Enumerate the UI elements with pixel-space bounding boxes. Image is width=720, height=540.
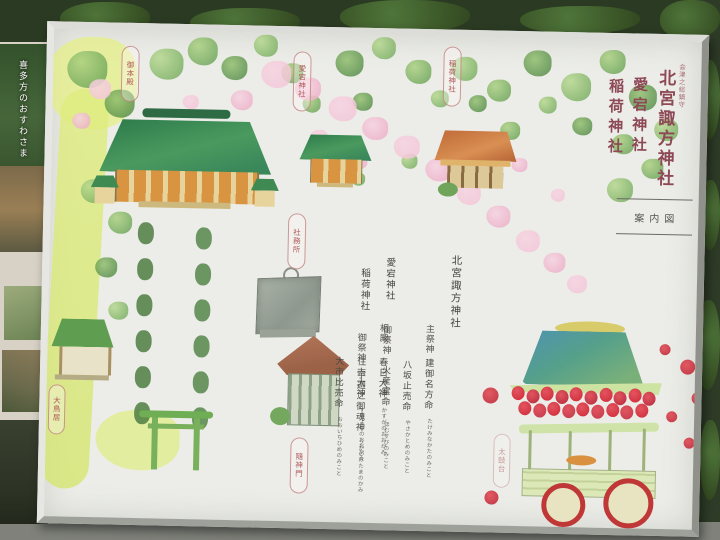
inari-hall-bush [438, 182, 458, 196]
lantern-row-blob [137, 258, 153, 280]
poster-photo-small-1 [4, 286, 42, 340]
tree-blob [405, 60, 431, 84]
blossom-blob [328, 96, 357, 122]
title-inari: 稲荷神社 [604, 78, 627, 158]
main-hall-steps [138, 201, 230, 209]
blossom-blob [394, 135, 420, 159]
legend-deity-takeminakata: 建御名方命 [422, 358, 436, 411]
float-post [642, 429, 646, 471]
legend-inari-heading: 御祭神 [355, 333, 369, 363]
blossom-blob [543, 253, 565, 273]
board-surface: 御本殿 愛宕神社 稲荷神社 社務所 大鳥居 隨神門 太鼓台 会津之総鎮守 北宮諏… [44, 28, 702, 529]
atago-hall-body [310, 159, 362, 184]
lantern-row-blob [135, 330, 151, 352]
map-label-float-text: 太鼓台 [496, 448, 508, 474]
map-label-inari-text: 稲荷神社 [446, 60, 458, 94]
title-main: 北宮諏方神社 [651, 69, 679, 189]
map-label-torii: 大鳥居 [48, 384, 66, 434]
blossom-blob [516, 230, 540, 252]
red-dot [482, 387, 498, 403]
lantern-icon [562, 404, 575, 418]
legend-furigana-oichihime: おおいちひめのみこと [334, 416, 343, 476]
blossom-blob [231, 90, 253, 110]
legend-furigana-yasakatome: やさかとめのみこと [402, 420, 411, 474]
legend-atago-deity: 火産霊命 [379, 365, 393, 407]
lantern-row-blob [136, 294, 152, 316]
tree-blob [95, 257, 117, 278]
tree-blob [108, 211, 132, 234]
lantern-icon [541, 387, 554, 401]
lantern-row-blob [193, 335, 209, 357]
blossom-blob [261, 61, 292, 89]
map-label-atago-text: 愛宕神社 [296, 64, 308, 98]
torii-post-left [151, 417, 158, 469]
atago-hall-steps [317, 183, 353, 188]
guide-map-box: 案内図 [616, 198, 693, 236]
tree-blob [561, 73, 592, 101]
blossom-blob [183, 95, 199, 110]
hut-body [59, 346, 112, 375]
lantern-icon [518, 401, 531, 415]
legend-inari-name: 稲荷神社 [356, 268, 371, 312]
main-hall-ridge [142, 108, 230, 119]
float-post [608, 430, 612, 472]
map-label-inari: 稲荷神社 [443, 46, 462, 106]
lantern-icon [635, 404, 648, 418]
lantern-icon [599, 388, 612, 402]
tree-blob [335, 50, 364, 76]
map-label-shamusho-text: 社務所 [291, 229, 303, 255]
atago-hall-illustration [299, 131, 372, 192]
poster-photo-small-2 [2, 350, 44, 412]
main-hall-body [115, 170, 260, 205]
hut-roof [52, 318, 115, 347]
blossom-blob [567, 275, 587, 293]
tree-blob [372, 37, 396, 60]
map-label-shamusho: 社務所 [287, 213, 306, 269]
stone-monument-illustration [256, 275, 321, 342]
atago-hall-roof [299, 131, 372, 161]
tree-blob [599, 50, 625, 74]
shrine-guide-board: 御本殿 愛宕神社 稲荷神社 社務所 大鳥居 隨神門 太鼓台 会津之総鎮守 北宮諏… [37, 21, 709, 537]
map-label-honden: 御本殿 [121, 46, 140, 102]
lantern-icon [533, 403, 546, 417]
tree-blob [572, 117, 592, 136]
map-label-gate: 隨神門 [289, 437, 308, 493]
legend-deity-oichihime: 大市比売命 [332, 356, 346, 409]
map-label-honden-text: 御本殿 [124, 61, 136, 87]
tree-blob [487, 79, 511, 102]
map-label-gate-text: 隨神門 [293, 453, 305, 479]
blossom-blob [72, 113, 90, 130]
tree-blob [539, 96, 557, 113]
legend-suwa-name: 北宮諏方神社 [448, 255, 465, 330]
lantern-row-blob [138, 222, 154, 244]
map-label-torii-text: 大鳥居 [51, 397, 63, 423]
lantern-icon [628, 388, 641, 402]
lantern-row-blob [196, 227, 212, 249]
annex-left-body [95, 187, 115, 203]
main-hall-illustration [98, 107, 272, 211]
tree-blob [469, 95, 487, 112]
legend-atago-name: 愛宕神社 [382, 257, 397, 301]
lantern-icon [511, 386, 524, 400]
title-atago: 愛宕神社 [628, 76, 651, 156]
hut-illustration [51, 318, 114, 385]
lantern-icon [577, 402, 590, 416]
guide-map-label: 案内図 [629, 209, 679, 225]
lantern-icon [620, 405, 633, 419]
float-lantern-rows [509, 324, 671, 427]
map-label-atago: 愛宕神社 [292, 51, 311, 111]
legend-atago-furigana: ほむすびのみこと [381, 421, 390, 469]
float-post [568, 431, 572, 473]
tree-blob [254, 34, 278, 57]
tree-blob [523, 50, 552, 76]
lantern-icon [606, 403, 619, 417]
tree-blob [108, 301, 128, 320]
blossom-blob [551, 189, 565, 202]
inari-hall-illustration [434, 128, 517, 198]
inari-hall-roof [435, 128, 518, 162]
float-canopy [519, 423, 659, 434]
red-dot [680, 359, 695, 374]
tree-blob [149, 48, 184, 80]
lantern-row-blob [193, 371, 209, 393]
hut-base [55, 374, 109, 380]
tree-blob [187, 37, 218, 65]
lantern-icon [570, 387, 583, 401]
lantern-icon [547, 402, 560, 416]
festival-float-illustration [507, 324, 671, 529]
legend-inari-deity: 宇迦之御魂神 [354, 370, 368, 433]
lantern-icon [591, 405, 604, 419]
float-wheel-left [541, 483, 586, 528]
torii-post-right [193, 418, 200, 470]
blossom-blob [486, 205, 510, 227]
red-dot [484, 490, 498, 504]
blossom-blob [89, 79, 111, 99]
legend-inari-furigana: うかのみたまのかみ [356, 439, 365, 493]
annex-right-body [254, 191, 274, 207]
lantern-row-blob [195, 263, 211, 285]
legend-heading-shusaijin: 主祭神 [423, 324, 437, 354]
lantern-row-blob [194, 299, 210, 321]
monument-slab [255, 276, 321, 334]
red-dot [684, 438, 695, 449]
float-wheel-right [603, 478, 654, 529]
lantern-row-blob [135, 366, 151, 388]
map-label-float: 太鼓台 [493, 434, 511, 488]
legend-atago-heading: 御祭神 [380, 325, 394, 355]
poster-caption: 喜多方のおすわさま [14, 60, 30, 280]
legend-deity-yasakatome: 八坂止売命 [400, 360, 414, 413]
main-hall-roof [99, 114, 272, 175]
float-post [528, 430, 532, 472]
torii-top-lintel [139, 410, 213, 419]
tree-blob [221, 56, 247, 80]
red-dot [691, 392, 702, 405]
torii-illustration [143, 410, 208, 473]
legend-furigana-takeminakata: たけみなかたのみこと [424, 418, 433, 478]
